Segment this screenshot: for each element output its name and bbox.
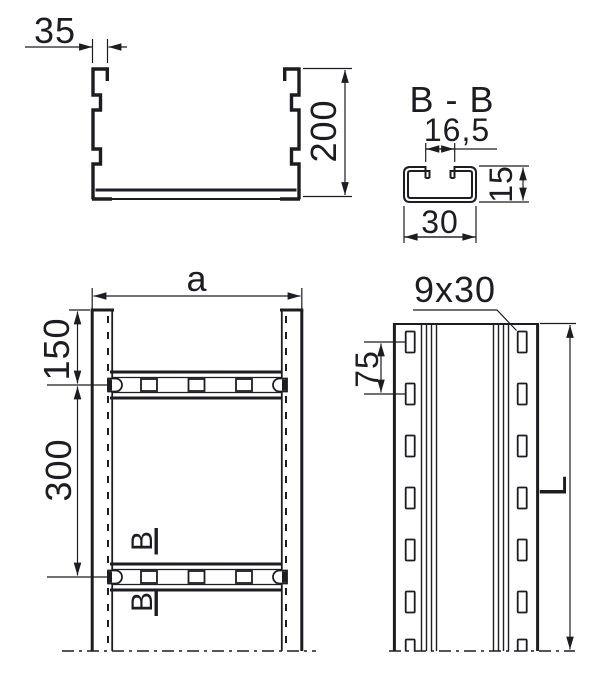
dim-overall-width-label: a [186,258,207,299]
view-front-section: 35 200 [25,10,352,199]
plan-rung-1 [107,372,287,398]
rung-end-hole-right-dark [282,572,287,583]
rung-slot [141,571,157,583]
dim-rung-pitch-label: 300 [38,438,79,501]
dim-slot-pitch-label: 75 [349,350,385,388]
leader-line [413,310,517,331]
side-rail-face [393,323,539,661]
dim-rung-height: 15 [479,165,529,203]
rail-slot [518,540,527,561]
dim-rung-pitch: 300 [38,387,111,578]
rung-profile-outer [404,167,476,202]
rung-slot [236,379,252,391]
rail-slot [518,592,527,613]
dim-rung-height-label: 15 [483,165,519,203]
dim-rail-height-label: 200 [303,99,344,162]
dim-slot-pitch: 75 [349,342,406,394]
rung-end-hole-right-dark [282,380,287,391]
view-rung-section: B - B 16,5 15 30 [404,79,529,243]
slot-column-right [518,332,527,661]
rail-slot [406,488,415,509]
dim-rung-width-label: 30 [421,204,459,240]
plan-rung-2 [107,564,287,590]
rail-slot [406,332,415,353]
dim-first-rung-offset-label: 150 [36,317,77,380]
rung-slot [189,571,205,583]
right-side-rail-profile [285,69,299,199]
dim-overall-width: a [92,258,302,309]
rail-slot [518,436,527,457]
rail-slot [406,436,415,457]
callout-slot-size-label: 9x30 [414,269,496,310]
dim-rail-height: 200 [303,69,352,197]
dim-overall-length: L [533,324,576,650]
rail-slot [406,384,415,405]
rung-slot [236,571,252,583]
view-side: 9x30 75 L [349,269,576,661]
technical-drawing: 35 200 B - B 16,5 [0,0,615,683]
dim-overall-length-label: L [533,475,575,496]
dim-opening-width: 16,5 [424,112,497,162]
dim-first-rung-offset: 150 [36,310,111,385]
rail-slot [518,488,527,509]
callout-slot-size: 9x30 [413,269,517,331]
dim-flange-width: 35 [25,10,127,63]
rail-slot [518,332,527,353]
dim-rung-width: 30 [404,204,476,243]
rail-slot [518,384,527,405]
dim-opening-width-label: 16,5 [424,112,490,148]
rung-slot [141,379,157,391]
rail-slot [406,640,415,661]
rung-slot [189,379,205,391]
rung-profile-inner [408,171,472,198]
slot-column-left [406,332,415,661]
section-cut-label-lower: B [126,592,159,612]
drawing-canvas: 35 200 B - B 16,5 [0,0,615,683]
section-cut-label-upper: B [126,531,159,551]
rail-slot [518,640,527,661]
rail-slot [406,540,415,561]
dim-flange-width-label: 35 [34,10,76,51]
rail-slot [406,592,415,613]
left-side-rail-profile [93,69,107,199]
view-plan: a 150 300 B B [36,258,316,651]
